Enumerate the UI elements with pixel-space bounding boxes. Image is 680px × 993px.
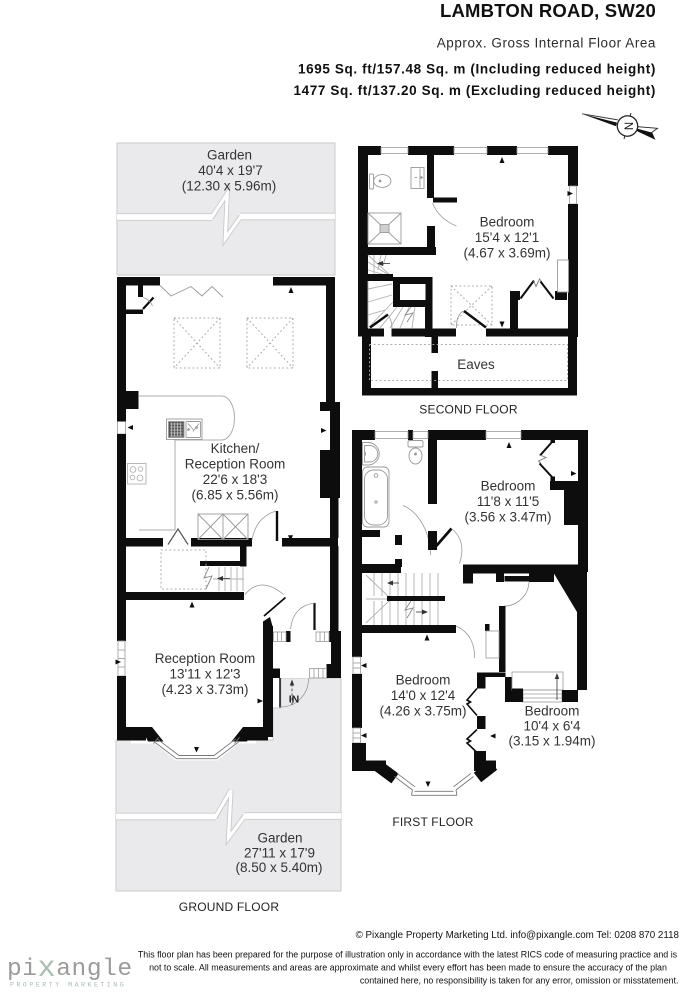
svg-text:contained here, no responsibil: contained here, no responsibility is tak… <box>360 976 679 986</box>
svg-text:N: N <box>622 122 634 130</box>
svg-text:(4.23 x 3.73m): (4.23 x 3.73m) <box>161 682 248 697</box>
svg-text:Bedroom: Bedroom <box>525 704 580 719</box>
svg-text:(6.85 x 5.56m): (6.85 x 5.56m) <box>191 487 278 502</box>
svg-text:Garden: Garden <box>257 831 302 846</box>
svg-text:(8.50 x 5.40m): (8.50 x 5.40m) <box>235 860 322 875</box>
svg-text:(3.56 x 3.47m): (3.56 x 3.47m) <box>464 510 551 525</box>
svg-text:IN: IN <box>289 694 300 706</box>
svg-text:This floor plan has been prepa: This floor plan has been prepared for th… <box>138 950 678 960</box>
svg-text:Garden: Garden <box>207 148 252 163</box>
svg-text:Bedroom: Bedroom <box>396 673 451 688</box>
svg-text:10'4 x 6'4: 10'4 x 6'4 <box>524 719 581 734</box>
svg-text:Bedroom: Bedroom <box>480 215 535 230</box>
svg-text:(4.67 x 3.69m): (4.67 x 3.69m) <box>463 246 550 261</box>
svg-text:1695 Sq. ft/157.48 Sq. m (Incl: 1695 Sq. ft/157.48 Sq. m (Including redu… <box>298 62 656 77</box>
svg-text:(12.30 x 5.96m): (12.30 x 5.96m) <box>182 179 277 194</box>
svg-text:GROUND FLOOR: GROUND FLOOR <box>179 900 280 914</box>
svg-text:15'4 x 12'1: 15'4 x 12'1 <box>475 230 539 245</box>
svg-text:1477 Sq. ft/137.20 Sq. m (Excl: 1477 Sq. ft/137.20 Sq. m (Excluding redu… <box>294 83 656 98</box>
svg-text:13'11 x 12'3: 13'11 x 12'3 <box>170 666 241 681</box>
svg-text:Bedroom: Bedroom <box>481 479 536 494</box>
svg-text:Eaves: Eaves <box>457 357 495 372</box>
svg-text:SECOND FLOOR: SECOND FLOOR <box>419 403 518 417</box>
svg-text:(4.26 x 3.75m): (4.26 x 3.75m) <box>379 704 466 719</box>
svg-text:(3.15 x 1.94m): (3.15 x 1.94m) <box>508 734 595 749</box>
svg-text:11'8 x 11'5: 11'8 x 11'5 <box>477 494 539 509</box>
svg-text:14'0 x 12'4: 14'0 x 12'4 <box>391 688 456 703</box>
svg-text:FIRST FLOOR: FIRST FLOOR <box>392 815 473 829</box>
svg-text:© Pixangle Property Marketing: © Pixangle Property Marketing Ltd. info@… <box>356 930 680 941</box>
svg-text:PROPERTY MARKETING: PROPERTY MARKETING <box>10 982 126 989</box>
svg-text:27'11 x 17'9: 27'11 x 17'9 <box>244 846 315 861</box>
svg-text:Reception Room: Reception Room <box>155 651 256 666</box>
svg-text:LAMBTON ROAD, SW20: LAMBTON ROAD, SW20 <box>440 0 656 21</box>
svg-text:Reception Room: Reception Room <box>185 456 286 471</box>
svg-text:22'6 x 18'3: 22'6 x 18'3 <box>203 472 267 487</box>
svg-text:Approx. Gross Internal Floor A: Approx. Gross Internal Floor Area <box>437 36 656 51</box>
svg-text:Kitchen/: Kitchen/ <box>211 441 260 456</box>
svg-text:not to scale. All measurements: not to scale. All measurements and areas… <box>149 963 667 973</box>
svg-text:40'4 x 19'7: 40'4 x 19'7 <box>198 163 262 178</box>
